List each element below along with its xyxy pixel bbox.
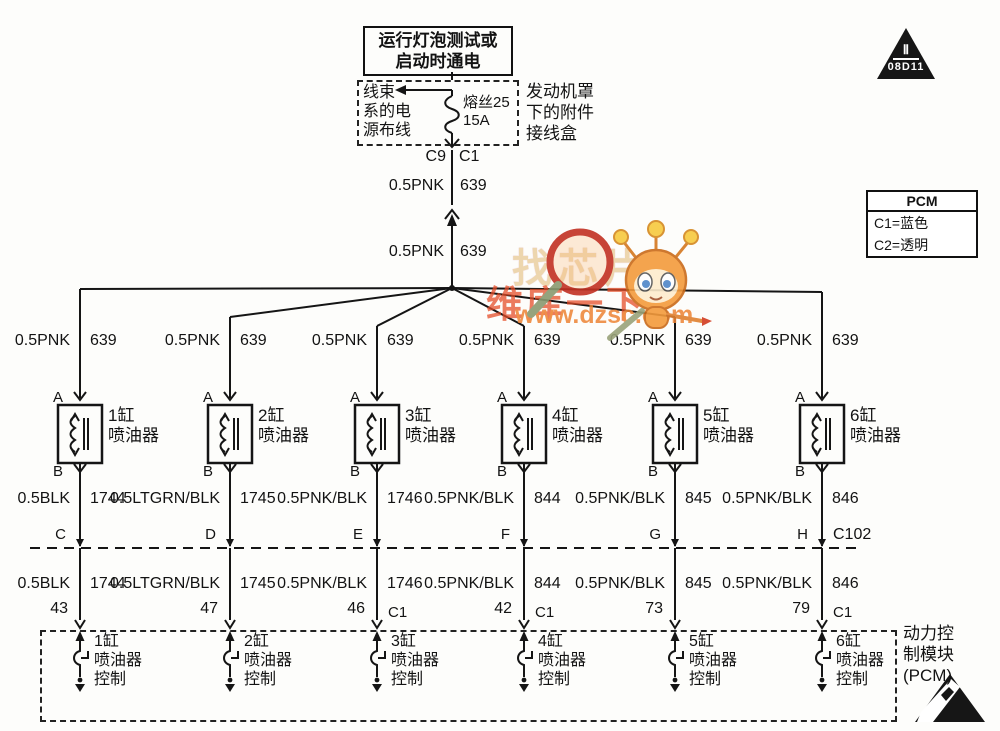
- feed-wire-circuit-1: 639: [460, 177, 487, 195]
- reference-triangle-top-text: Ⅱ: [893, 42, 919, 60]
- feed-wire: [445, 150, 459, 291]
- harness-power-label: 线束 系的电 源布线: [363, 83, 411, 140]
- fanout-wires: [80, 288, 822, 398]
- feed-wire-gauge-1: 0.5PNK: [274, 177, 444, 195]
- pcm-module-box: [40, 630, 897, 722]
- injector-symbol-4: [502, 392, 546, 628]
- connector-c9: C9: [404, 148, 446, 166]
- feed-wire-gauge-2: 0.5PNK: [274, 243, 444, 261]
- feed-wire-circuit-2: 639: [460, 243, 487, 261]
- power-condition-box: 运行灯泡测试或 启动时通电: [363, 26, 513, 76]
- injector-symbol-2: [208, 392, 252, 628]
- junction-box-label: 发动机罩 下的附件 接线盒: [526, 81, 594, 144]
- injector-symbol-1: [58, 392, 102, 628]
- pcm-connector-legend: PCM C1=蓝色 C2=透明: [866, 190, 978, 258]
- injector-symbol-6: [800, 392, 844, 628]
- connector-c1: C1: [459, 148, 479, 166]
- pcm-module-label: 动力控 制模块 (PCM): [903, 623, 954, 686]
- pcm-legend-title: PCM: [868, 192, 976, 212]
- injector-symbol-3: [355, 392, 399, 628]
- fuse-label: 熔丝25 15A: [463, 94, 510, 130]
- reference-triangle-code: 08D11: [879, 61, 933, 73]
- injector-symbol-5: [653, 392, 697, 628]
- injector-wiring-diagram: 运行灯泡测试或 启动时通电 线束 系的电 源布线 熔丝25 15A 发动机罩 下…: [0, 0, 1000, 731]
- pcm-legend-row-c1: C1=蓝色: [868, 212, 976, 234]
- power-condition-text: 运行灯泡测试或 启动时通电: [379, 30, 498, 72]
- pcm-legend-row-c2: C2=透明: [868, 234, 976, 256]
